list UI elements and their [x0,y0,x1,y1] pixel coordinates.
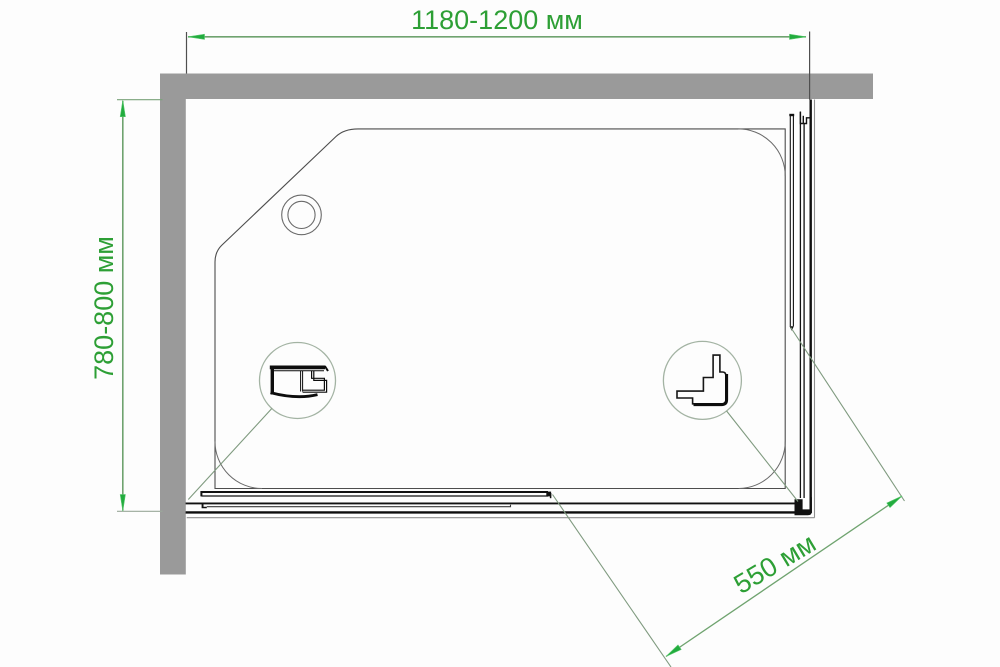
svg-text:1180-1200 мм: 1180-1200 мм [411,5,583,35]
svg-text:780-800 мм: 780-800 мм [89,236,119,380]
